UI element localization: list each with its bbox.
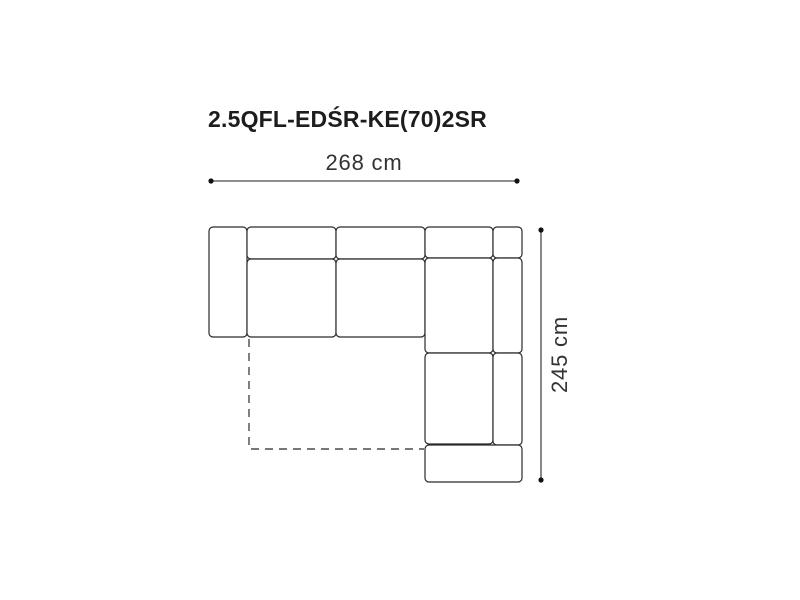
sofa-piece-backrest-right-upper — [493, 258, 522, 353]
sofa-piece-seat-right — [425, 353, 493, 444]
sofa-top-view-diagram — [0, 0, 800, 600]
sofa-piece-backrest-left — [247, 227, 336, 259]
sofa-piece-backrest-right-lower — [493, 353, 522, 445]
sofa-piece-backrest-mid — [336, 227, 425, 259]
height-dimension-dot-bottom — [538, 477, 543, 482]
sofa-piece-corner-connector — [493, 227, 522, 258]
sofa-piece-seat-corner — [425, 258, 493, 353]
sofa-piece-armrest-bottom — [425, 445, 522, 482]
sofa-piece-armrest-left — [209, 227, 247, 337]
height-dimension-dot-top — [538, 227, 543, 232]
sofa-piece-backrest-corner — [425, 227, 493, 258]
sofa-piece-seat-left — [247, 259, 336, 337]
product-dimension-diagram: 2.5QFL-EDŚR-KE(70)2SR 268 cm 245 cm — [0, 0, 800, 600]
width-dimension-dot-right — [514, 178, 519, 183]
bed-extension-dashed-outline — [249, 339, 424, 449]
width-dimension-dot-left — [208, 178, 213, 183]
sofa-piece-seat-mid — [336, 259, 425, 337]
